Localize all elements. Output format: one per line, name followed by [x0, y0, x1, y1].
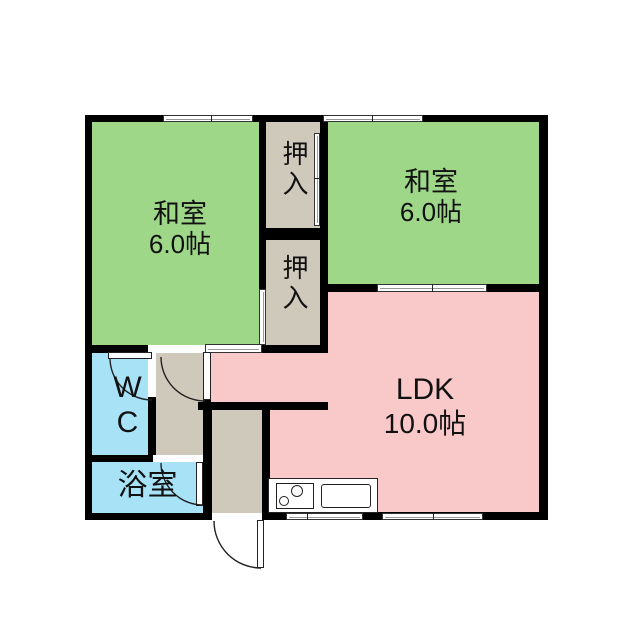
- room-name: 和室: [105, 199, 255, 229]
- room-label-washitsu-right: 和室 6.0帖: [356, 167, 506, 227]
- room-label-oshiire-top: 押入: [279, 140, 309, 200]
- door-arc-entrance: [214, 521, 261, 568]
- floor-plan: 和室 6.0帖 押入 和室 6.0帖 押入 LDK 10.0帖 WC 浴室: [0, 0, 640, 640]
- room-area: 10.0帖: [350, 407, 500, 441]
- room-label-washitsu-left: 和室 6.0帖: [105, 199, 255, 259]
- stove-burner-icon: [291, 485, 303, 497]
- room-label-bathroom: 浴室: [92, 471, 203, 501]
- room-label-wc: WC: [110, 371, 144, 441]
- room-label-ldk: LDK 10.0帖: [350, 373, 500, 441]
- room-name: LDK: [350, 373, 500, 407]
- room-name: 和室: [356, 167, 506, 197]
- sink-icon: [321, 484, 371, 508]
- room-area: 6.0帖: [356, 197, 506, 227]
- room-label-oshiire-bottom: 押入: [279, 254, 309, 314]
- door-arc-washitsu-hall: [161, 357, 205, 401]
- door-swing-arcs: [0, 0, 640, 640]
- stove-burner-icon: [279, 496, 289, 506]
- room-area: 6.0帖: [105, 229, 255, 259]
